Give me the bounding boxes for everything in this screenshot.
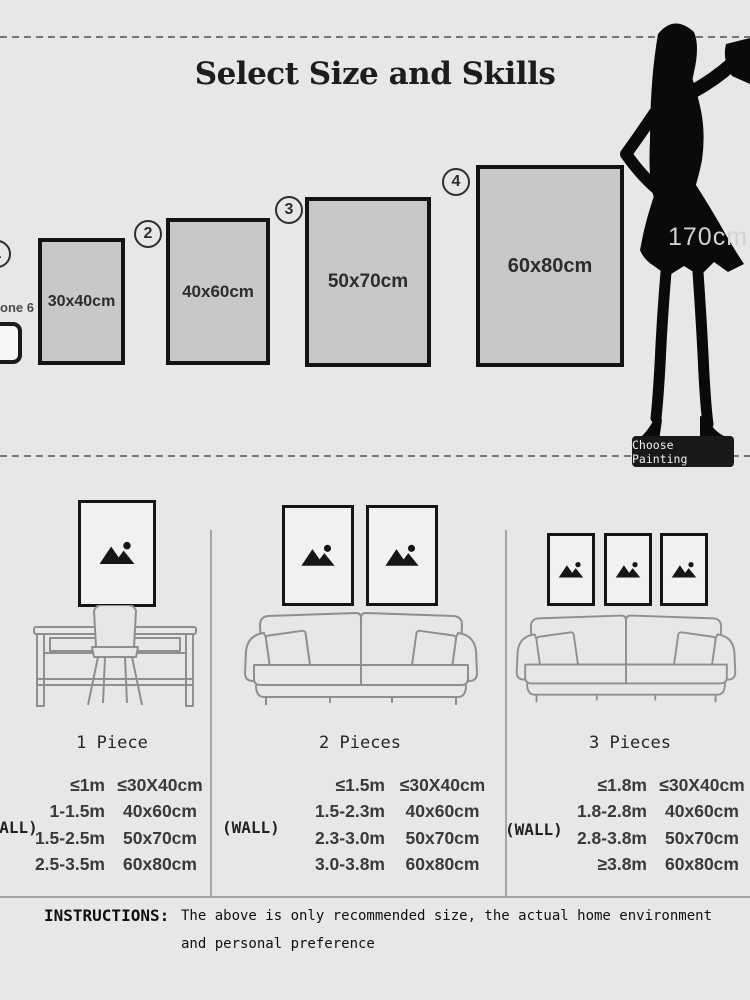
scene-1-label: 1 Piece: [37, 733, 187, 753]
table-row: 1.8-2.8m40x60cm: [552, 799, 750, 826]
sofa-drawing: [512, 607, 740, 707]
canvas-size-cell: 60x80cm: [652, 854, 750, 875]
size-option-2-number: 2: [134, 220, 162, 248]
desk-and-chair-drawing: [30, 605, 200, 710]
table-row: 2.8-3.8m50x70cm: [552, 825, 750, 852]
wall-width-cell: 2.5-3.5m: [20, 854, 105, 875]
wall-frame: [660, 533, 708, 606]
instructions-text-line2: and personal preference: [181, 936, 375, 952]
canvas-size-cell: 40x60cm: [110, 801, 210, 822]
canvas-size-cell: 50x70cm: [110, 828, 210, 849]
size-option-50x70[interactable]: 50x70cm: [305, 197, 431, 367]
wall-frame: [282, 505, 354, 606]
size-option-1-label: 30x40cm: [48, 293, 116, 311]
wall-width-cell: ≥3.8m: [552, 854, 647, 875]
table-row: 1.5-2.3m40x60cm: [290, 799, 495, 826]
phone-reference-label: one 6: [0, 300, 34, 315]
image-placeholder-icon: [97, 539, 137, 567]
size-option-30x40[interactable]: 30x40cm: [38, 238, 125, 365]
wall-width-cell: 2.8-3.8m: [552, 828, 647, 849]
size-option-4-number: 4: [442, 168, 470, 196]
table-row: 1-1.5m40x60cm: [20, 799, 210, 826]
wall-width-cell: ≤1m: [20, 775, 105, 796]
instructions-label: INSTRUCTIONS:: [44, 906, 169, 925]
wall-width-cell: 1.5-2.3m: [290, 801, 385, 822]
column-divider: [210, 530, 212, 897]
wall-frame: [78, 500, 156, 607]
size-table-3: ≤1.8m≤30X40cm 1.8-2.8m40x60cm 2.8-3.8m50…: [552, 772, 750, 878]
canvas-size-cell: 40x60cm: [390, 801, 495, 822]
table-row: ≤1.5m≤30X40cm: [290, 772, 495, 799]
wall-width-cell: 3.0-3.8m: [290, 854, 385, 875]
wall-width-cell: 1-1.5m: [20, 801, 105, 822]
choose-painting-button[interactable]: Choose Painting: [632, 436, 734, 467]
model-height-label: 170cm: [668, 223, 748, 252]
table-row: ≤1m≤30X40cm: [20, 772, 210, 799]
wall-frame: [604, 533, 652, 606]
canvas-size-cell: ≤30X40cm: [652, 775, 750, 796]
size-table-2: ≤1.5m≤30X40cm 1.5-2.3m40x60cm 2.3-3.0m50…: [290, 772, 495, 878]
image-placeholder-icon: [383, 542, 421, 569]
wall-width-cell: 1.5-2.5m: [20, 828, 105, 849]
image-placeholder-icon: [670, 560, 698, 580]
wall-frame: [366, 505, 438, 606]
wall-width-cell: ≤1.5m: [290, 775, 385, 796]
wall-label: (WALL): [222, 818, 280, 837]
table-row: 1.5-2.5m50x70cm: [20, 825, 210, 852]
phone-icon: [0, 322, 22, 364]
image-placeholder-icon: [299, 542, 337, 569]
image-placeholder-icon: [557, 560, 585, 580]
canvas-size-cell: ≤30X40cm: [390, 775, 495, 796]
size-guide-infographic: Select Size and Skills one 6 1 30x40cm 2…: [0, 0, 750, 1000]
size-option-40x60[interactable]: 40x60cm: [166, 218, 270, 365]
footer-divider: [0, 896, 750, 898]
table-row: ≤1.8m≤30X40cm: [552, 772, 750, 799]
column-divider: [505, 530, 507, 897]
image-placeholder-icon: [614, 560, 642, 580]
table-row: 2.5-3.5m60x80cm: [20, 852, 210, 879]
canvas-size-cell: 50x70cm: [390, 828, 495, 849]
scene-2-label: 2 Pieces: [285, 733, 435, 753]
table-row: 2.3-3.0m50x70cm: [290, 825, 495, 852]
wall-frame: [547, 533, 595, 606]
size-table-1: ≤1m≤30X40cm 1-1.5m40x60cm 1.5-2.5m50x70c…: [20, 772, 210, 878]
canvas-size-cell: 50x70cm: [652, 828, 750, 849]
size-option-3-label: 50x70cm: [328, 271, 408, 293]
scene-3-label: 3 Pieces: [555, 733, 705, 753]
canvas-size-cell: 60x80cm: [390, 854, 495, 875]
size-option-4-label: 60x80cm: [508, 255, 593, 278]
wall-width-cell: 1.8-2.8m: [552, 801, 647, 822]
canvas-size-cell: 60x80cm: [110, 854, 210, 875]
size-option-1-number: 1: [0, 240, 11, 268]
size-option-3-number: 3: [275, 196, 303, 224]
table-row: 3.0-3.8m60x80cm: [290, 852, 495, 879]
size-option-2-label: 40x60cm: [182, 282, 254, 302]
wall-width-cell: ≤1.8m: [552, 775, 647, 796]
instructions-text-line1: The above is only recommended size, the …: [181, 908, 712, 924]
canvas-size-cell: ≤30X40cm: [110, 775, 210, 796]
canvas-size-cell: 40x60cm: [652, 801, 750, 822]
sofa-drawing: [240, 607, 482, 707]
wall-width-cell: 2.3-3.0m: [290, 828, 385, 849]
table-row: ≥3.8m60x80cm: [552, 852, 750, 879]
